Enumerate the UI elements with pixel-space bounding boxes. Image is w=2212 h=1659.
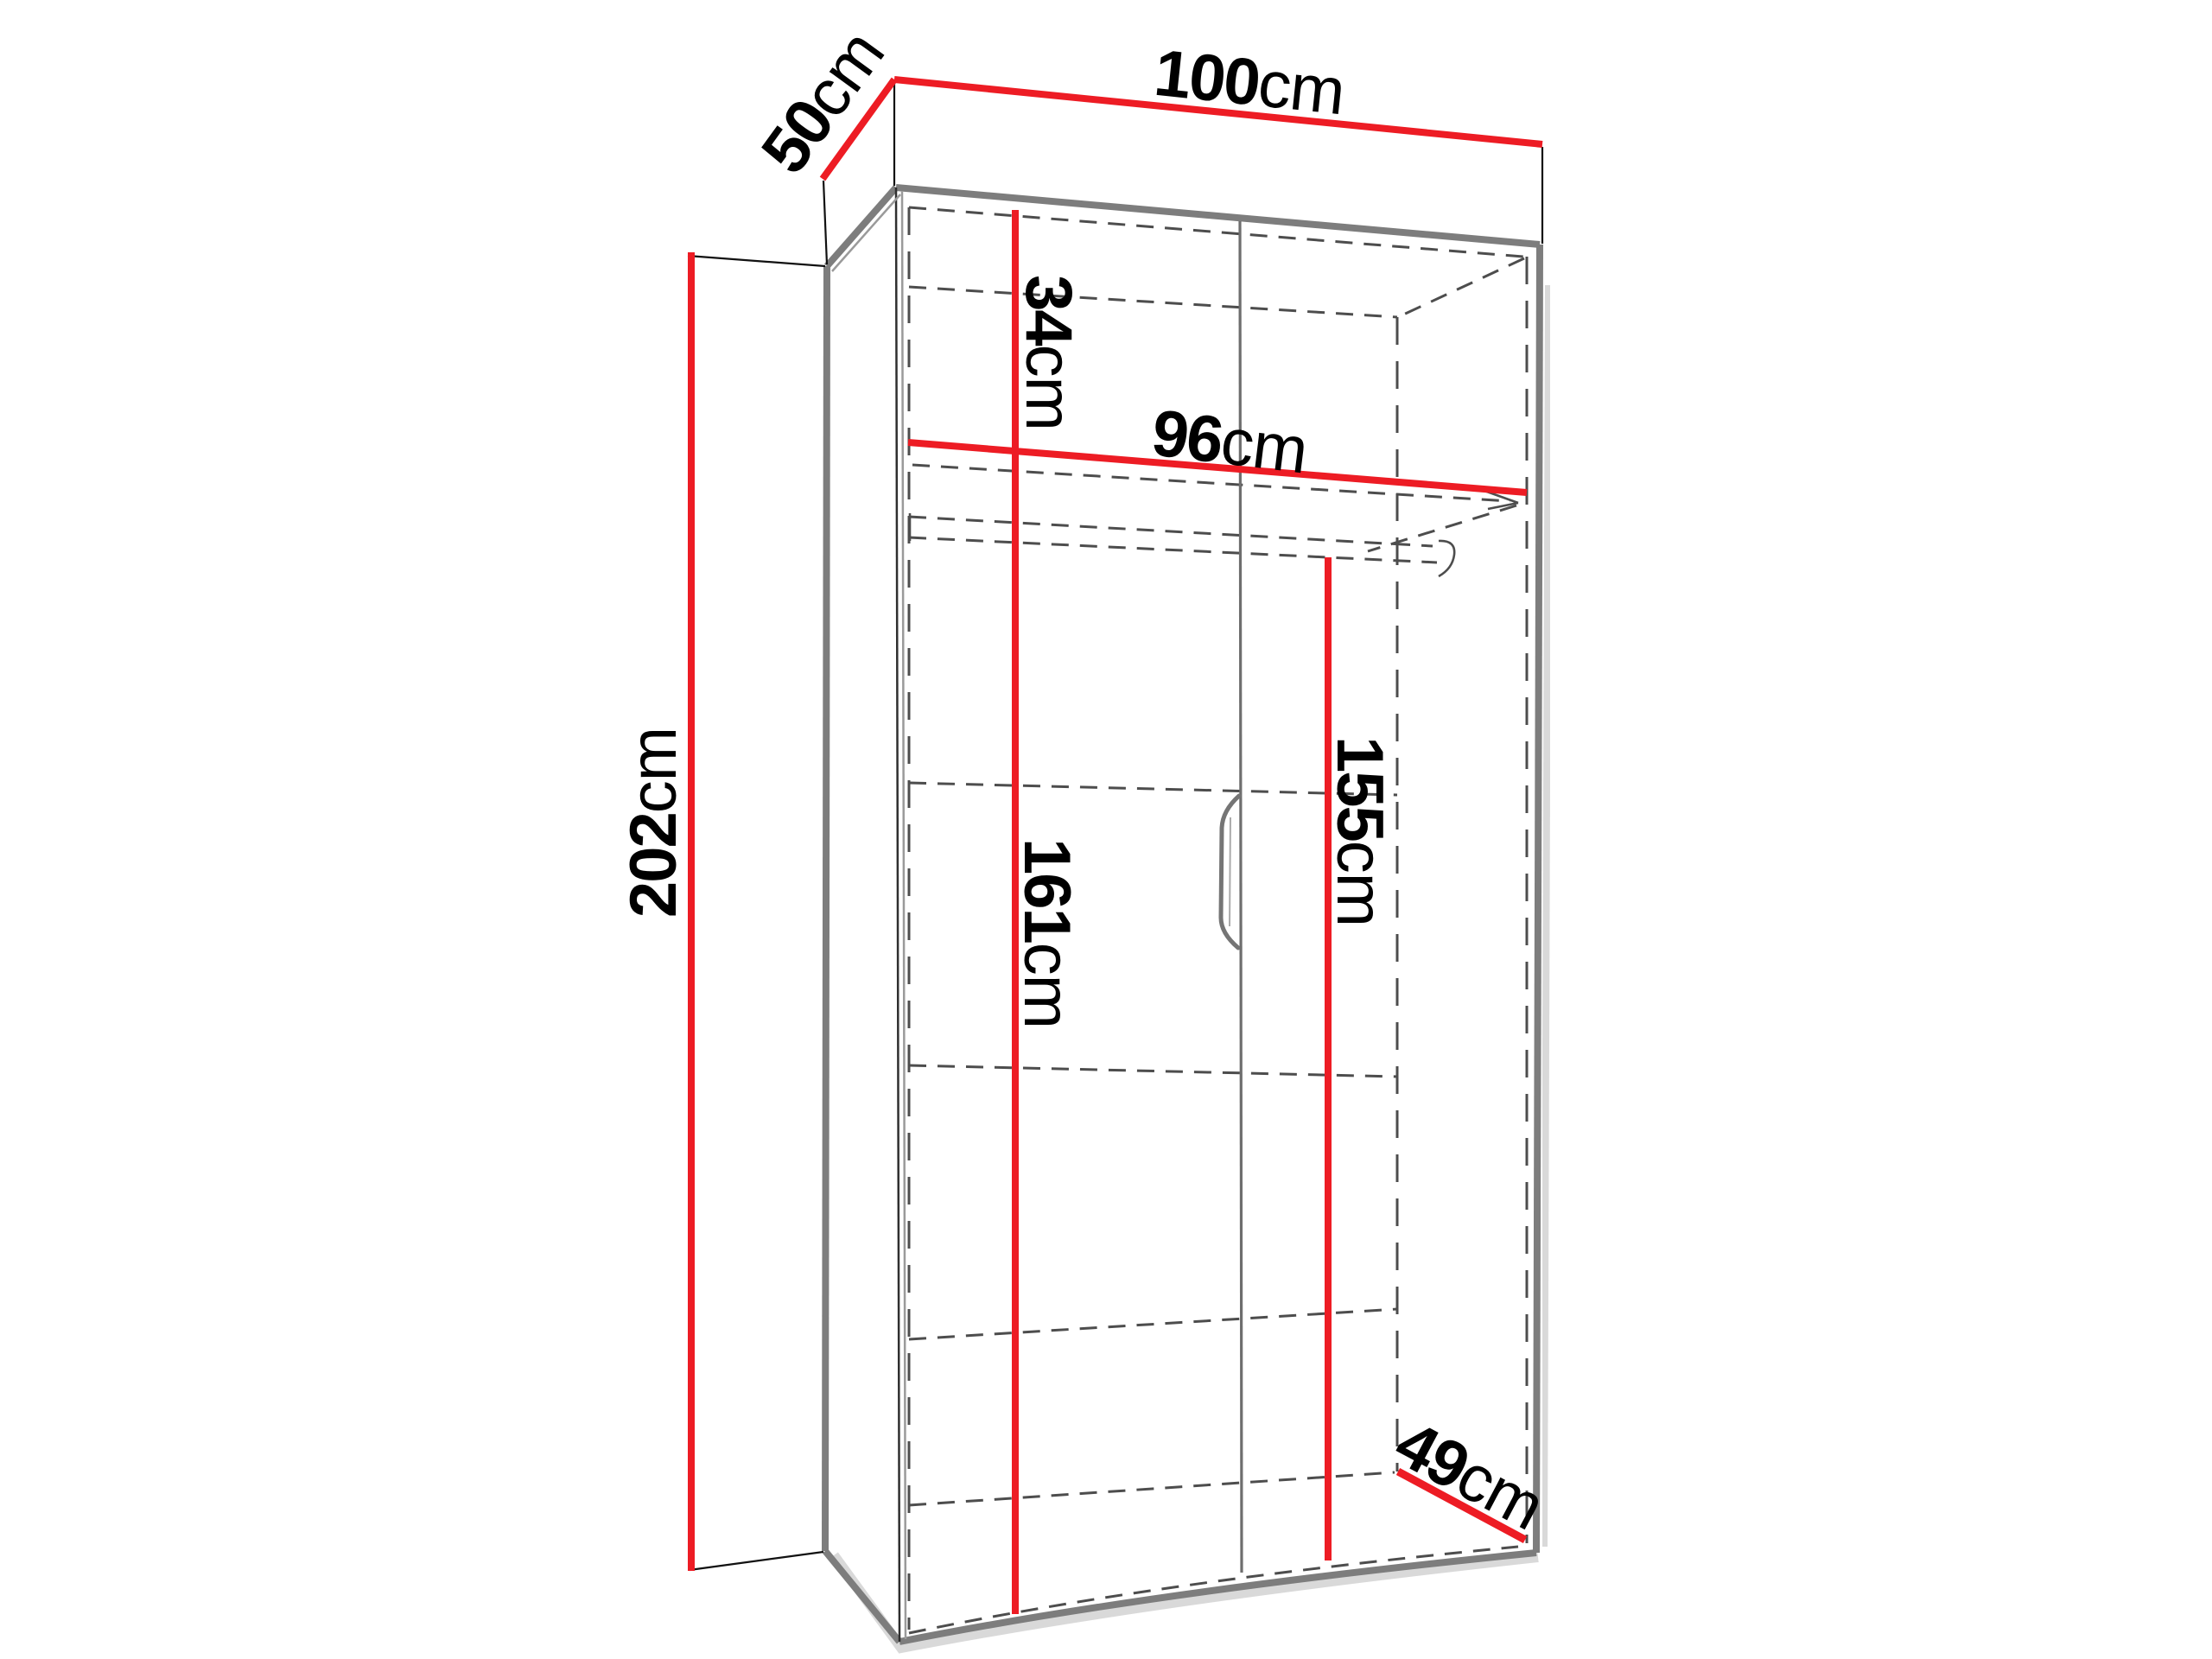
label-interior-shelf-width: 96cm xyxy=(1148,396,1312,487)
label-lower-compartment-height: 161cm xyxy=(1011,838,1084,1028)
shelf-position-line-2 xyxy=(909,1065,1397,1077)
label-interior-depth: 49cm xyxy=(1384,1406,1556,1543)
label-upper-compartment-height: 34cm xyxy=(1013,275,1086,430)
top-left-depth-edge xyxy=(827,188,896,266)
dimension-labels: 100cm 50cm 202cm 34cm 96cm 161cm 155cm 4… xyxy=(617,17,1556,1543)
hanging-rail-right-bracket xyxy=(1439,541,1454,576)
label-overall-height: 202cm xyxy=(617,728,690,918)
shelf-position-line-3 xyxy=(909,1309,1397,1339)
interior-ceiling-right-edge xyxy=(1400,258,1524,316)
hanging-rail-bottom-line xyxy=(909,537,1437,563)
interior-ceiling-back-edge xyxy=(909,287,1397,317)
back-left-edge xyxy=(825,266,827,1551)
top-left-edge-inner xyxy=(832,194,900,271)
front-right-edge xyxy=(1536,245,1540,1553)
wardrobe-dimension-diagram: 100cm 50cm 202cm 34cm 96cm 161cm 155cm 4… xyxy=(0,0,2212,1659)
front-left-edge xyxy=(896,188,899,1642)
label-overall-width: 100cm xyxy=(1151,35,1348,129)
right-edge-shadow xyxy=(1544,285,1548,1547)
label-rail-to-floor-height: 155cm xyxy=(1324,736,1397,926)
depth-extension-bottom xyxy=(823,181,827,264)
top-front-edge xyxy=(896,188,1540,245)
hanging-rail-top-line xyxy=(909,517,1433,546)
height-extension-bottom xyxy=(690,1552,823,1570)
shelf-right-edge xyxy=(1368,505,1516,551)
door-handle-inner-line xyxy=(1230,817,1230,926)
height-extension-top xyxy=(688,256,825,266)
front-left-edge-inner xyxy=(902,191,906,1639)
bottom-left-depth-edge xyxy=(825,1551,899,1642)
interior-floor-back-edge xyxy=(909,1472,1395,1505)
diagram-stage: 100cm 50cm 202cm 34cm 96cm 161cm 155cm 4… xyxy=(0,0,2212,1659)
dimension-extension-lines xyxy=(688,83,1542,1570)
